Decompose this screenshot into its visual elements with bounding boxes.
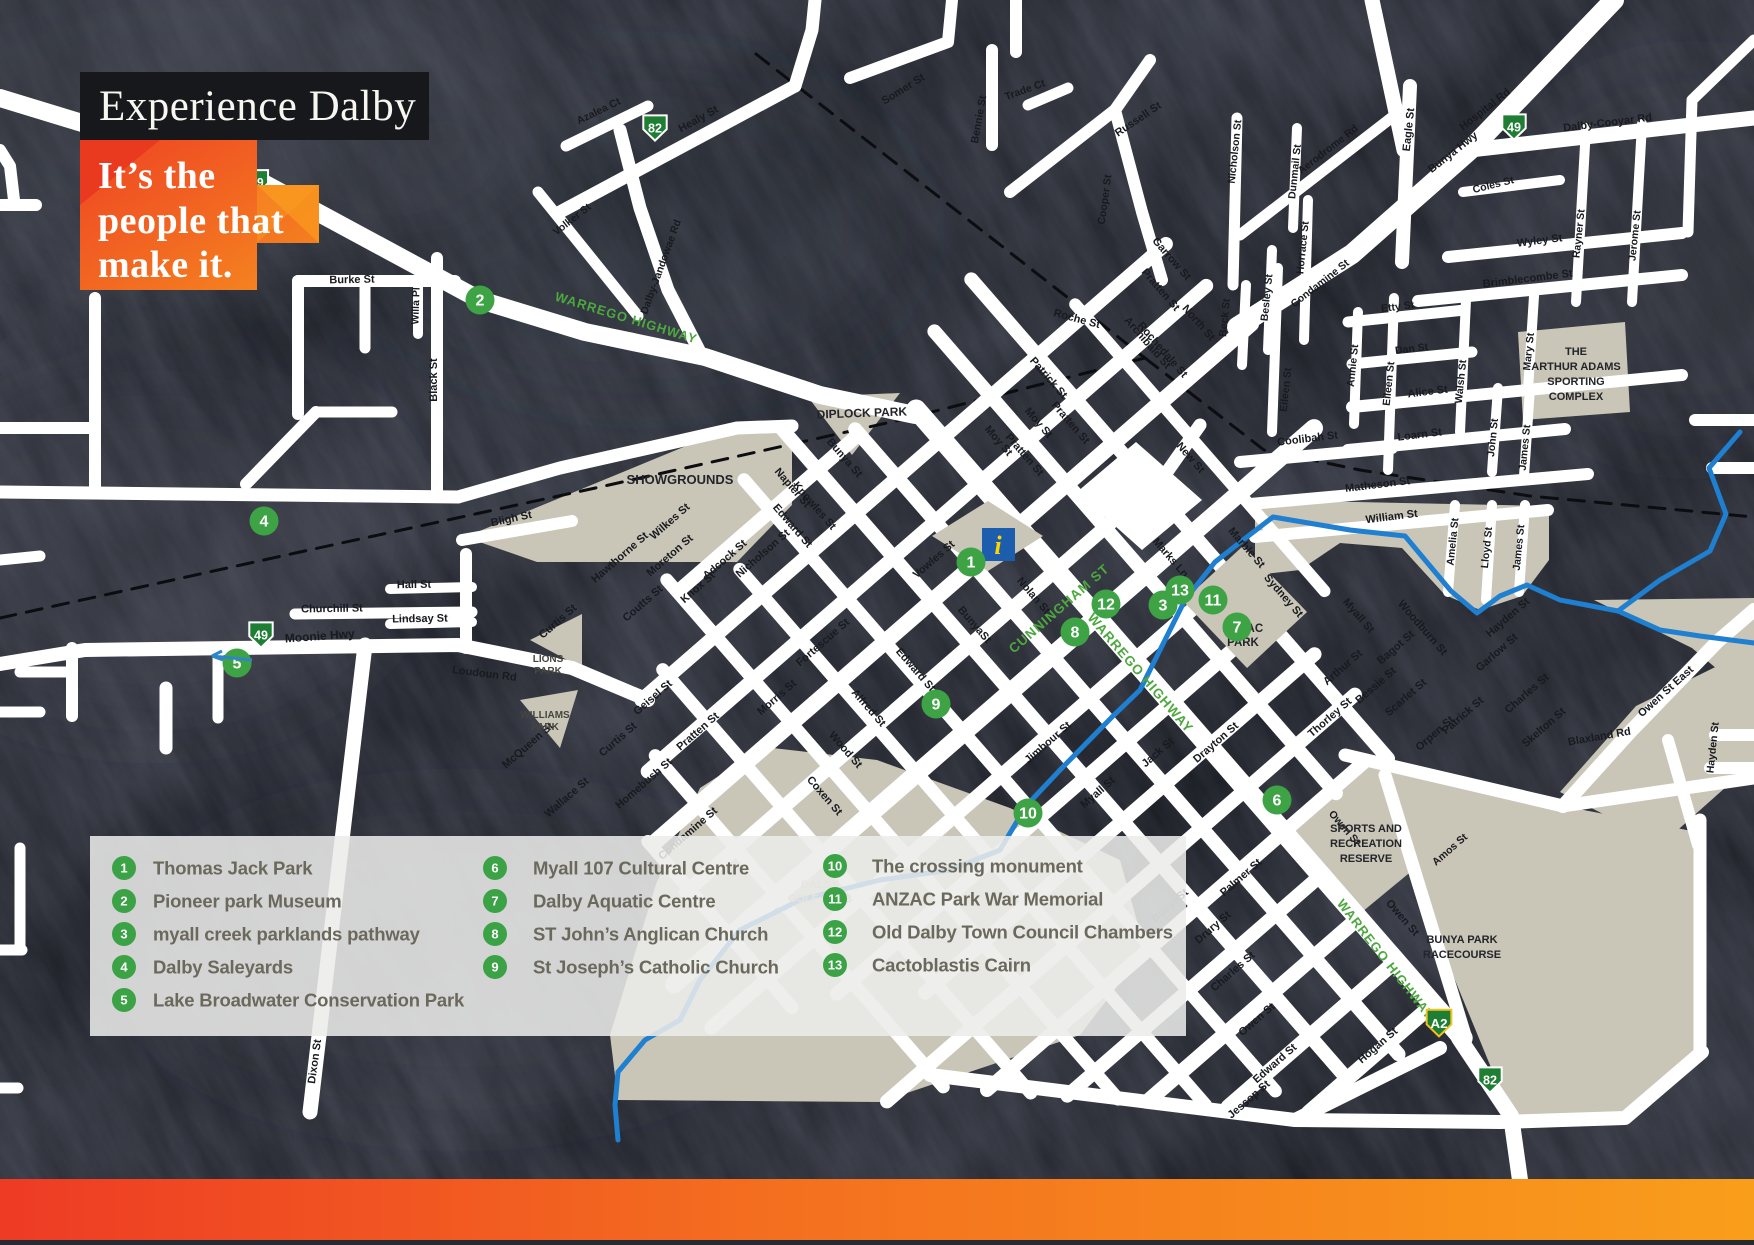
svg-text:i: i bbox=[994, 531, 1002, 560]
svg-text:BUNYA PARK: BUNYA PARK bbox=[1426, 934, 1497, 946]
svg-text:1: 1 bbox=[967, 555, 976, 572]
svg-text:7: 7 bbox=[491, 894, 498, 909]
svg-text:8: 8 bbox=[491, 927, 498, 942]
svg-text:ANZAC Park War Memorial: ANZAC Park War Memorial bbox=[872, 889, 1103, 910]
svg-text:SPORTING: SPORTING bbox=[1547, 376, 1604, 388]
svg-text:Hall St: Hall St bbox=[397, 579, 432, 592]
svg-text:10: 10 bbox=[828, 859, 842, 874]
svg-text:ST John’s Anglican Church: ST John’s Anglican Church bbox=[533, 924, 768, 945]
svg-text:SPORTS AND: SPORTS AND bbox=[1330, 823, 1402, 835]
svg-text:12: 12 bbox=[828, 925, 842, 940]
svg-text:THE: THE bbox=[1565, 346, 1587, 358]
svg-text:11: 11 bbox=[1205, 593, 1222, 610]
svg-text:LIONS: LIONS bbox=[533, 654, 564, 665]
svg-text:12: 12 bbox=[1097, 597, 1115, 614]
svg-text:Thomas Jack Park: Thomas Jack Park bbox=[153, 858, 313, 879]
svg-text:10: 10 bbox=[1019, 806, 1037, 823]
svg-text:COMPLEX: COMPLEX bbox=[1549, 391, 1604, 403]
svg-text:people that: people that bbox=[98, 200, 284, 242]
svg-text:Dalby Aquatic Centre: Dalby Aquatic Centre bbox=[533, 891, 715, 912]
svg-text:7: 7 bbox=[1233, 620, 1242, 637]
svg-text:PARK: PARK bbox=[531, 722, 559, 733]
svg-text:make it.: make it. bbox=[98, 244, 233, 286]
svg-text:Dalby Saleyards: Dalby Saleyards bbox=[153, 957, 293, 978]
svg-text:RESERVE: RESERVE bbox=[1340, 853, 1392, 865]
svg-text:9: 9 bbox=[932, 697, 941, 714]
svg-text:Black St: Black St bbox=[428, 358, 440, 402]
svg-text:The crossing monument: The crossing monument bbox=[872, 856, 1083, 877]
svg-text:Pioneer park Museum: Pioneer park Museum bbox=[153, 891, 341, 912]
svg-text:4: 4 bbox=[120, 960, 128, 975]
svg-text:RACECOURSE: RACECOURSE bbox=[1423, 949, 1501, 961]
svg-text:Myall 107 Cultural Centre: Myall 107 Cultural Centre bbox=[533, 858, 749, 879]
svg-text:49: 49 bbox=[1507, 121, 1521, 135]
svg-text:Churchill St: Churchill St bbox=[301, 602, 363, 615]
svg-text:Lake Broadwater Conservation P: Lake Broadwater Conservation Park bbox=[153, 990, 465, 1011]
svg-text:9: 9 bbox=[491, 960, 498, 975]
svg-text:3: 3 bbox=[1159, 598, 1168, 615]
svg-text:St Joseph’s Catholic Church: St Joseph’s Catholic Church bbox=[533, 957, 779, 978]
svg-text:49: 49 bbox=[254, 629, 268, 643]
svg-text:Cactoblastis Cairn: Cactoblastis Cairn bbox=[872, 955, 1031, 976]
svg-text:Burke St: Burke St bbox=[329, 274, 375, 287]
svg-text:Willa Pl: Willa Pl bbox=[409, 287, 422, 325]
svg-text:6: 6 bbox=[491, 861, 498, 876]
svg-text:RECREATION: RECREATION bbox=[1330, 838, 1402, 850]
svg-text:13: 13 bbox=[1171, 583, 1189, 600]
svg-text:A2: A2 bbox=[1431, 1016, 1448, 1031]
svg-text:8: 8 bbox=[1071, 625, 1080, 642]
svg-text:Old Dalby Town Council Chamber: Old Dalby Town Council Chambers bbox=[872, 922, 1173, 943]
svg-text:2: 2 bbox=[120, 894, 127, 909]
svg-text:5: 5 bbox=[120, 993, 127, 1008]
svg-text:SHOWGROUNDS: SHOWGROUNDS bbox=[627, 472, 734, 487]
svg-text:1: 1 bbox=[120, 861, 127, 876]
svg-text:Experience Dalby: Experience Dalby bbox=[99, 83, 416, 130]
svg-text:2: 2 bbox=[476, 293, 485, 310]
svg-text:ARTHUR ADAMS: ARTHUR ADAMS bbox=[1531, 361, 1620, 373]
svg-text:4: 4 bbox=[260, 514, 269, 531]
svg-text:WILLIAMS: WILLIAMS bbox=[520, 710, 570, 721]
svg-text:11: 11 bbox=[828, 892, 842, 907]
svg-text:13: 13 bbox=[828, 958, 842, 973]
svg-text:3: 3 bbox=[120, 927, 127, 942]
svg-text:82: 82 bbox=[1483, 1074, 1497, 1088]
svg-text:82: 82 bbox=[648, 122, 662, 136]
svg-text:It’s the: It’s the bbox=[98, 155, 216, 197]
svg-text:myall creek parklands pathway: myall creek parklands pathway bbox=[153, 924, 421, 945]
svg-text:PARK: PARK bbox=[534, 666, 562, 677]
svg-text:Lindsay St: Lindsay St bbox=[392, 613, 448, 626]
svg-text:6: 6 bbox=[1273, 793, 1282, 810]
